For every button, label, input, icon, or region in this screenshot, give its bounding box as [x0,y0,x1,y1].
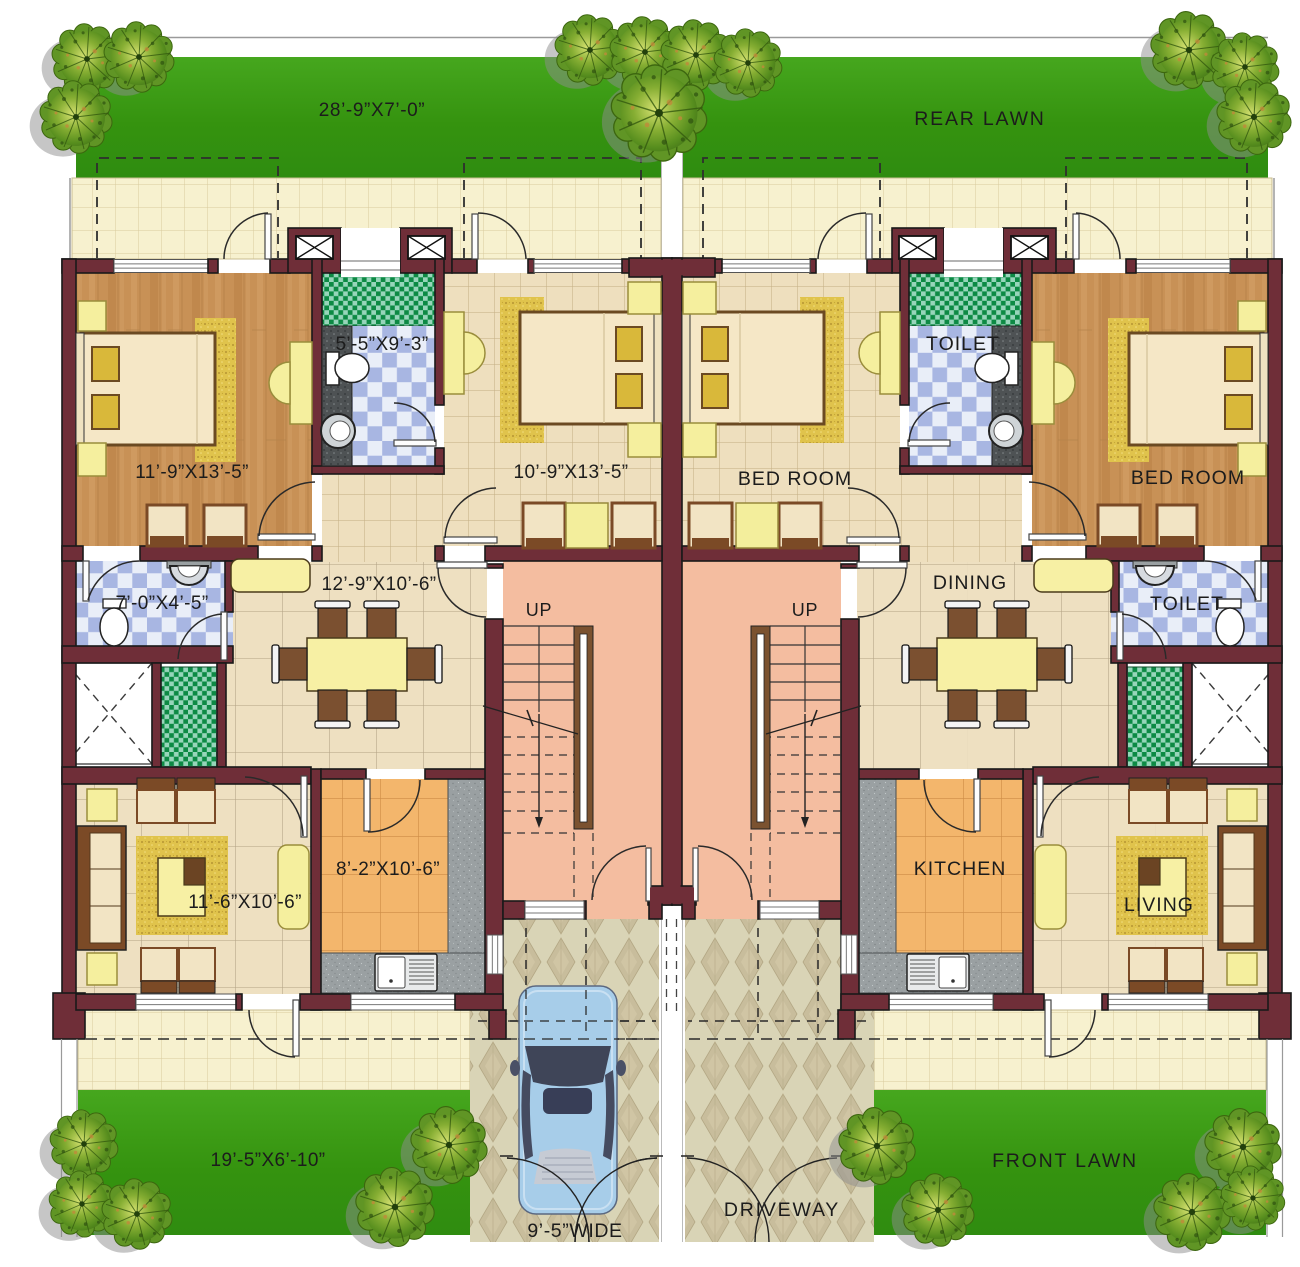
svg-text:LIVING: LIVING [1124,894,1194,916]
svg-text:TOILET: TOILET [1150,593,1224,615]
svg-text:UP: UP [526,600,553,620]
svg-text:DINING: DINING [933,572,1007,594]
svg-text:19’-5”X6’-10”: 19’-5”X6’-10” [210,1150,325,1171]
svg-text:11’-6”X10’-6”: 11’-6”X10’-6” [188,892,302,913]
svg-text:7’-0”X4’-5”: 7’-0”X4’-5” [115,593,208,614]
svg-text:28’-9”X7’-0”: 28’-9”X7’-0” [319,100,425,121]
svg-text:12’-9”X10’-6”: 12’-9”X10’-6” [321,574,436,595]
svg-text:BED ROOM: BED ROOM [738,468,852,490]
svg-text:BED ROOM: BED ROOM [1131,467,1245,489]
svg-text:REAR LAWN: REAR LAWN [914,108,1045,130]
svg-text:9’-5”WIDE: 9’-5”WIDE [527,1220,622,1242]
svg-text:5’-5”X9’-3”: 5’-5”X9’-3” [335,334,428,355]
svg-text:FRONT LAWN: FRONT LAWN [992,1150,1138,1172]
svg-text:TOILET: TOILET [926,333,1000,355]
svg-text:UP: UP [792,600,819,620]
svg-text:KITCHEN: KITCHEN [914,858,1007,880]
svg-text:DRIVEWAY: DRIVEWAY [724,1199,840,1221]
svg-text:10’-9”X13’-5”: 10’-9”X13’-5” [513,462,628,483]
svg-text:11’-9”X13’-5”: 11’-9”X13’-5” [135,462,249,483]
svg-text:8’-2”X10’-6”: 8’-2”X10’-6” [336,859,440,880]
